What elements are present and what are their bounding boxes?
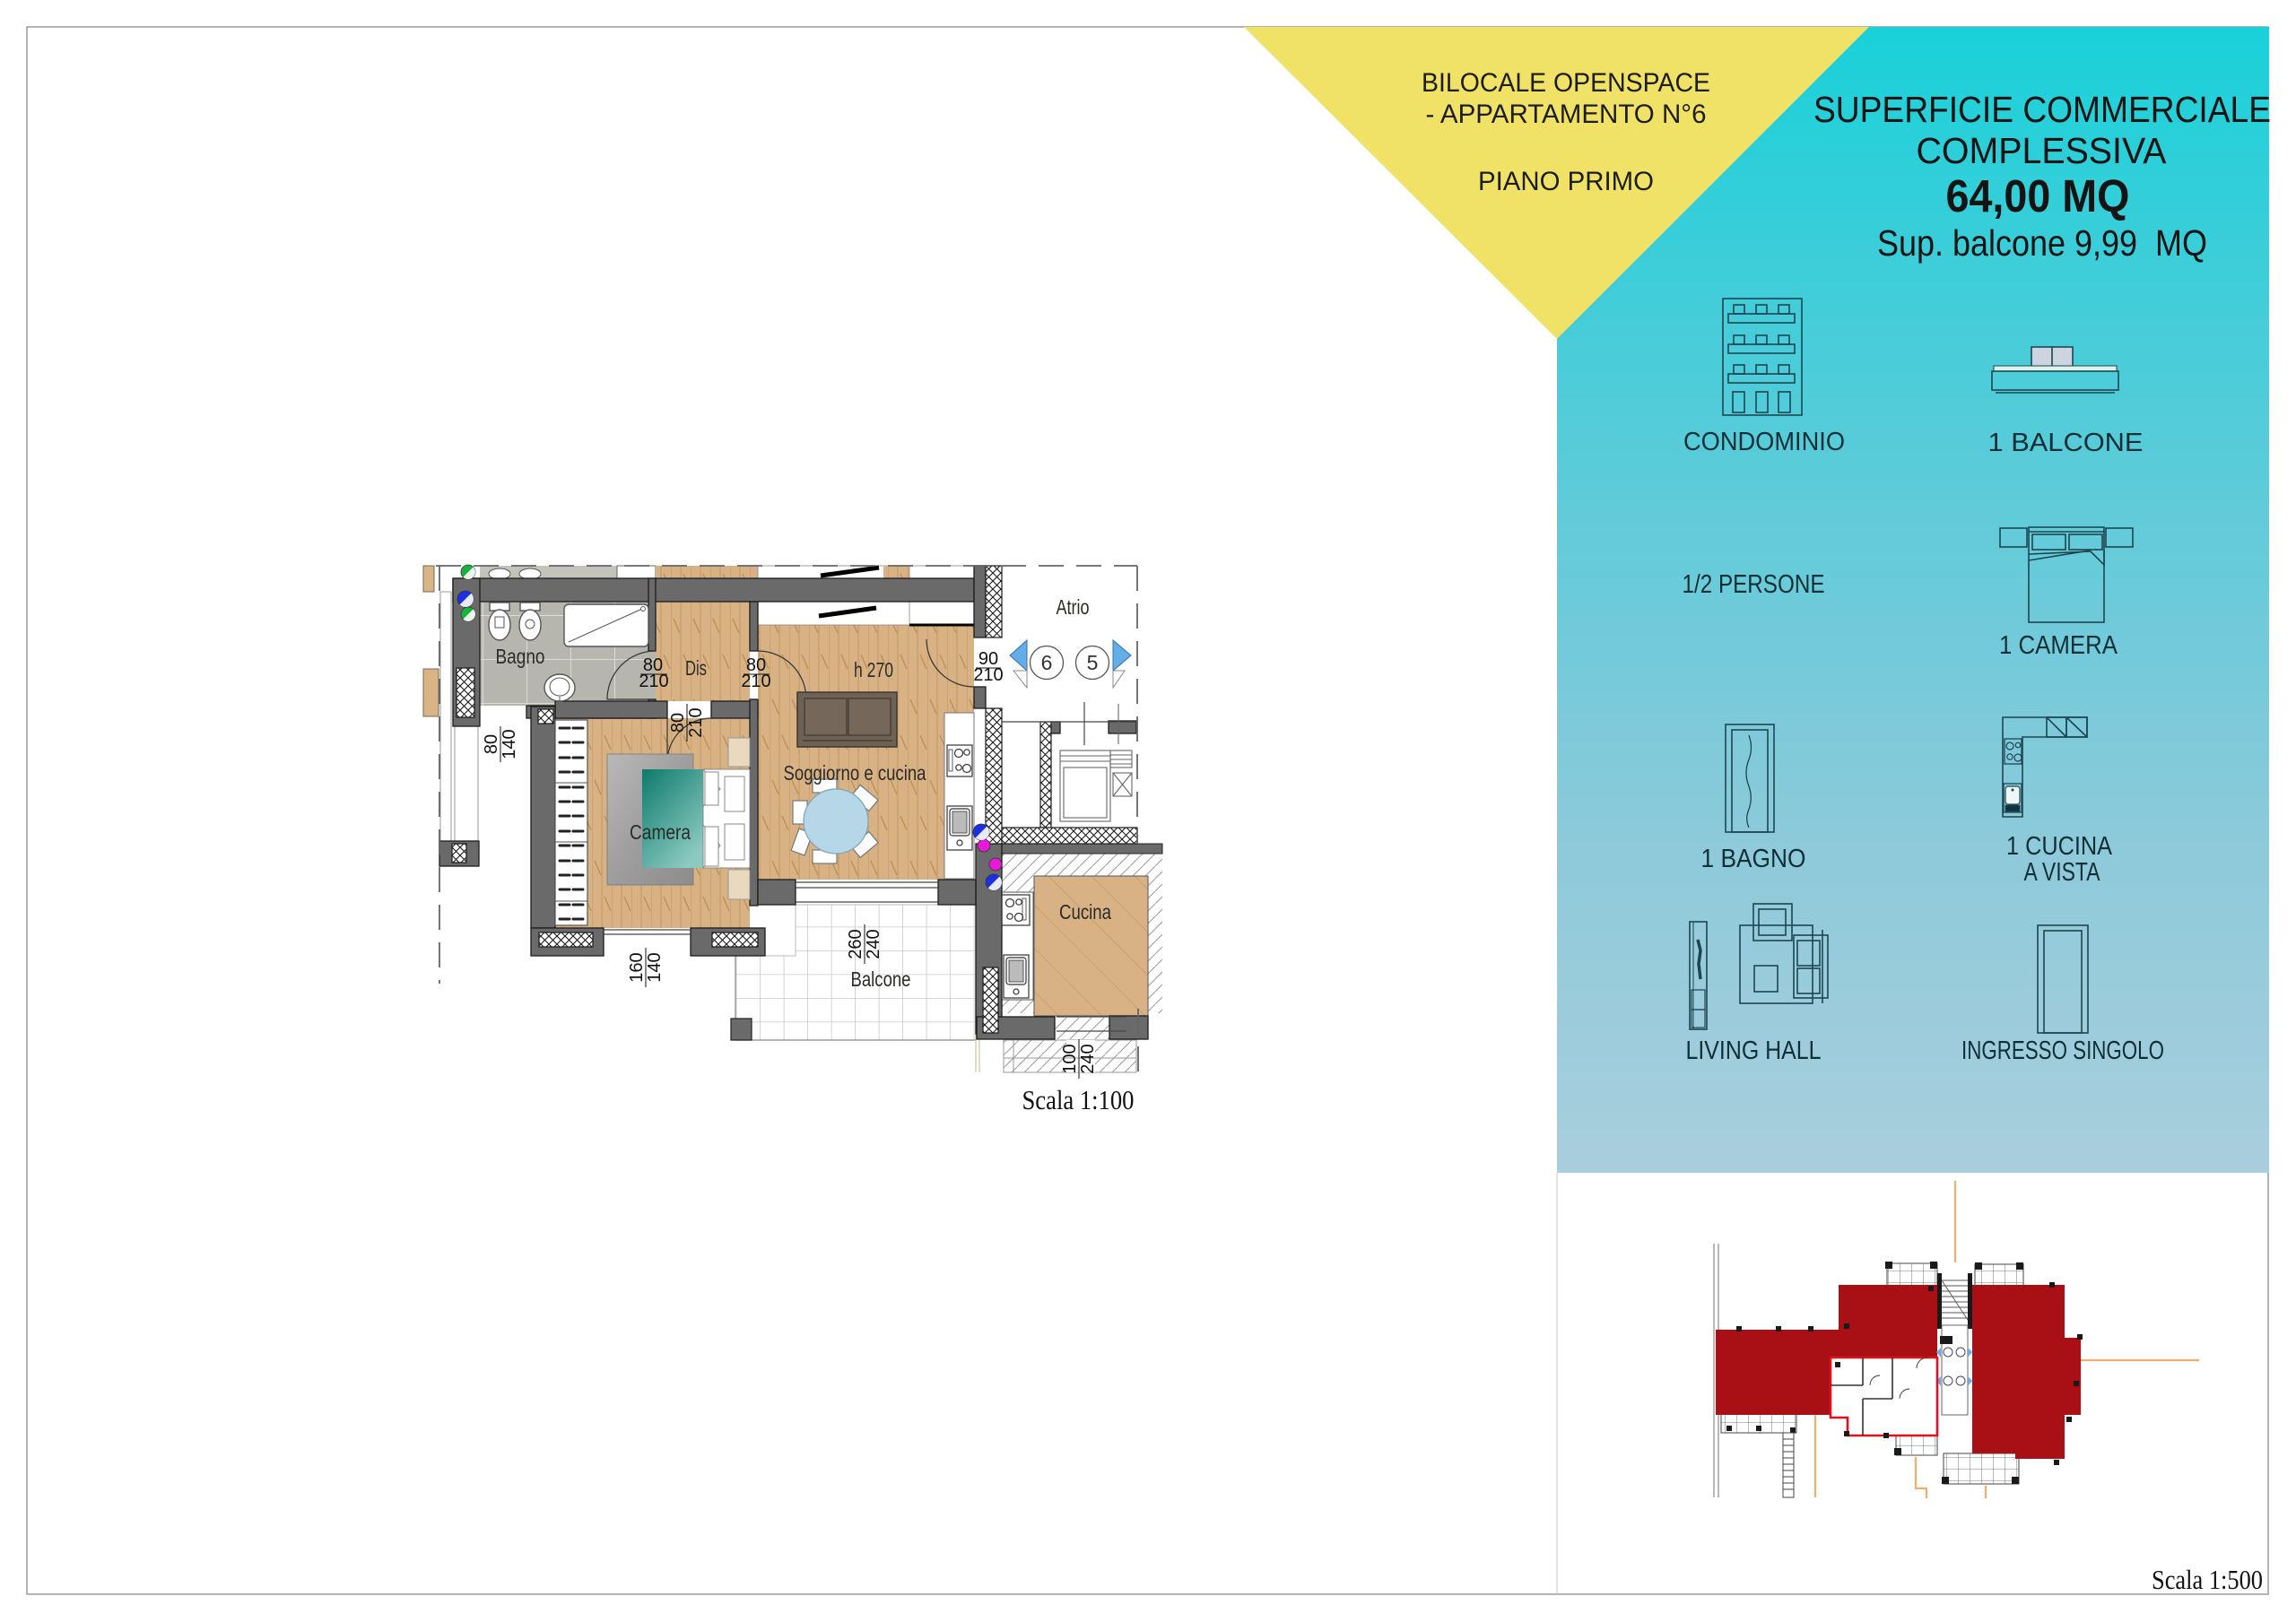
svg-text:1 CUCINA: 1 CUCINA [2006, 832, 2113, 861]
svg-text:160: 160 [627, 952, 647, 982]
svg-text:Bagno: Bagno [496, 645, 545, 668]
svg-text:5: 5 [1087, 651, 1099, 674]
svg-text:Sup. balcone 9,99 MQ: Sup. balcone 9,99 MQ [1877, 222, 2207, 264]
svg-text:64,00 MQ: 64,00 MQ [1946, 170, 2130, 221]
svg-text:Cucina: Cucina [1059, 900, 1111, 924]
svg-text:Soggiorno e cucina: Soggiorno e cucina [784, 761, 926, 785]
svg-text:1 CAMERA: 1 CAMERA [1999, 631, 2118, 660]
svg-text:140: 140 [500, 729, 519, 759]
svg-text:6: 6 [1041, 651, 1053, 674]
svg-text:80: 80 [482, 734, 501, 754]
svg-text:Scala 1:500: Scala 1:500 [2152, 1564, 2263, 1595]
svg-text:Atrio: Atrio [1057, 595, 1090, 619]
svg-text:Camera: Camera [630, 820, 691, 844]
svg-text:Dis: Dis [685, 656, 707, 680]
svg-text:1/2 PERSONE: 1/2 PERSONE [1683, 570, 1825, 599]
svg-text:210: 210 [686, 707, 706, 737]
svg-text:A VISTA: A VISTA [2024, 858, 2101, 887]
svg-text:240: 240 [1078, 1044, 1098, 1073]
svg-text:INGRESSO SINGOLO: INGRESSO SINGOLO [1961, 1037, 2164, 1065]
svg-text:1 BALCONE: 1 BALCONE [1988, 429, 2144, 457]
svg-text:80: 80 [668, 713, 688, 733]
svg-text:SUPERFICIE COMMERCIALE: SUPERFICIE COMMERCIALE [1813, 89, 2271, 130]
svg-text:CONDOMINIO: CONDOMINIO [1683, 428, 1845, 456]
svg-text:COMPLESSIVA: COMPLESSIVA [1917, 130, 2168, 171]
svg-text:h 270: h 270 [854, 658, 893, 681]
svg-text:PIANO PRIMO: PIANO PRIMO [1478, 167, 1654, 196]
svg-text:1 BAGNO: 1 BAGNO [1701, 845, 1806, 873]
svg-text:100: 100 [1060, 1044, 1080, 1073]
svg-text:260: 260 [846, 929, 865, 958]
svg-text:240: 240 [864, 929, 883, 958]
svg-text:- APPARTAMENTO N°6: - APPARTAMENTO N°6 [1426, 100, 1707, 129]
svg-text:140: 140 [645, 952, 665, 982]
svg-text:BILOCALE OPENSPACE: BILOCALE OPENSPACE [1422, 68, 1710, 98]
svg-text:Scala 1:100: Scala 1:100 [1022, 1084, 1135, 1115]
svg-text:LIVING HALL: LIVING HALL [1686, 1037, 1822, 1065]
svg-text:Balcone: Balcone [851, 967, 911, 991]
